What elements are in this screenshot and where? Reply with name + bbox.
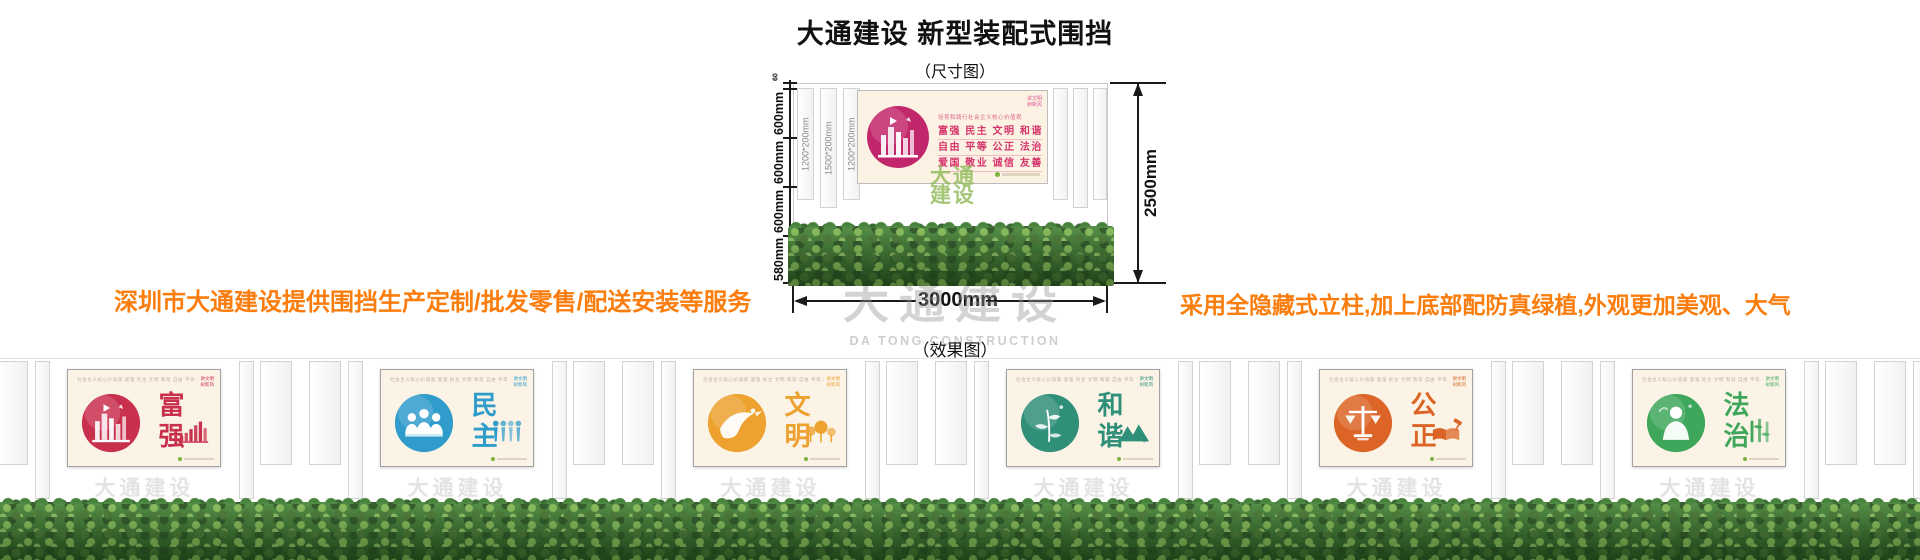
book-and-gavel-icon	[1431, 418, 1463, 444]
micro-header: 社会主义核心价值观 富强 民主 文明 和谐 自由 平等 公正 法治 爱国 敬业 …	[703, 377, 824, 383]
fence-post	[1248, 361, 1280, 465]
fence-post	[0, 361, 28, 465]
post-right-2	[1073, 88, 1088, 208]
effect-diagram-label: （效果图）	[750, 336, 1160, 361]
segment-60: 60	[768, 70, 784, 84]
green-dot-icon	[1430, 457, 1434, 461]
micro-header: 社会主义核心价值观 富强 民主 文明 和谐 自由 平等 公正 法治 爱国 敬业 …	[1016, 377, 1137, 383]
artificial-hedge	[0, 502, 1920, 560]
micro-header: 社会主义核心价值观 富强 民主 文明 和谐 自由 平等 公正 法治 爱国 敬业 …	[1329, 377, 1450, 383]
panel-footer-mark	[995, 172, 1040, 177]
values-row-2: 自由 平等 公正 法治	[938, 140, 1042, 156]
micro-header: 社会主义核心价值观 富强 民主 文明 和谐 自由 平等 公正 法治 爱国 敬业 …	[1642, 377, 1763, 383]
value-panel: 社会主义核心价值观 富强 民主 文明 和谐 自由 平等 公正 法治 爱国 敬业 …	[380, 369, 534, 467]
post-right-1	[1053, 88, 1068, 200]
height-dim-line	[1137, 84, 1139, 282]
fence-post	[935, 361, 967, 465]
values-row-1: 富强 民主 文明 和谐	[938, 124, 1042, 140]
post-right-3	[1093, 88, 1107, 200]
micro-text-bar	[497, 458, 527, 461]
micro-text-bar	[1123, 458, 1153, 461]
corner-slogan: 讲文明 树新风	[1453, 376, 1467, 387]
page-title: 大通建设 新型装配式围挡	[750, 12, 1160, 51]
fence-post	[622, 361, 654, 465]
corner-slogan: 讲文明 树新风	[1140, 376, 1154, 387]
people-marks-icon	[492, 418, 524, 444]
fence-post	[1825, 361, 1857, 465]
green-dot-icon	[1743, 457, 1747, 461]
micro-text-bar	[810, 458, 840, 461]
panel-footer-mark	[491, 457, 527, 461]
fence-post	[1199, 361, 1231, 465]
panel-footer-mark	[1117, 457, 1153, 461]
left-service-note: 深圳市大通建设提供围挡生产定制/批发零售/配送安装等服务	[114, 282, 751, 317]
panel-footer-mark	[178, 457, 214, 461]
core-values-list: 培育和践行社会主义核心价值观 富强 民主 文明 和谐 自由 平等 公正 法治 爱…	[938, 113, 1042, 172]
fence-post	[260, 361, 292, 465]
corner-slogan: 讲文明 树新风	[514, 376, 528, 387]
segment-600-2: 600mm	[771, 138, 787, 186]
fence-post	[1874, 361, 1906, 465]
green-brand-badge: 大通 建设	[930, 167, 976, 205]
micro-text-bar	[1749, 458, 1779, 461]
green-dot-icon	[178, 457, 182, 461]
micro-header: 社会主义核心价值观 富强 民主 文明 和谐 自由 平等 公正 法治 爱国 敬业 …	[390, 377, 511, 383]
figure-silhouette-motif-icon	[1646, 393, 1706, 453]
value-panel: 社会主义核心价值观 富强 民主 文明 和谐 自由 平等 公正 法治 爱国 敬业 …	[1632, 369, 1786, 467]
micro-text-bar	[1436, 458, 1466, 461]
corner-slogan: 讲文明 树新风	[827, 376, 841, 387]
fence-post	[309, 361, 341, 465]
city-skyline-motif-icon	[81, 393, 141, 453]
forest-leaves-motif-icon	[1020, 393, 1080, 453]
fence-post	[573, 361, 605, 465]
corner-slogan: 讲文明 树新风	[1766, 376, 1780, 387]
post-1500: 1500*200mm	[820, 88, 837, 208]
people-holding-hands-motif-icon	[394, 393, 454, 453]
panel-footer-mark	[1743, 457, 1779, 461]
value-panel: 社会主义核心价值观 富强 民主 文明 和谐 自由 平等 公正 法治 爱国 敬业 …	[693, 369, 847, 467]
segment-600-1: 600mm	[771, 89, 787, 137]
post-size-label: 1200*200mm	[798, 89, 813, 199]
fence-post	[1561, 361, 1593, 465]
crane-bird-motif-icon	[707, 393, 767, 453]
green-dot-icon	[1117, 457, 1121, 461]
scales-of-justice-motif-icon	[1333, 393, 1393, 453]
slogan-header: 培育和践行社会主义核心价值观	[938, 113, 1042, 121]
mountains-icon	[1118, 418, 1150, 444]
value-panel: 社会主义核心价值观 富强 民主 文明 和谐 自由 平等 公正 法治 爱国 敬业 …	[1006, 369, 1160, 467]
segment-600-3: 600mm	[771, 187, 787, 235]
green-dot-icon	[995, 172, 1000, 177]
corner-slogan: 讲文明 树新风	[201, 376, 215, 387]
green-dot-icon	[491, 457, 495, 461]
city-skyline-motif-icon	[866, 105, 930, 169]
panel-footer-mark	[1430, 457, 1466, 461]
fence-post	[1512, 361, 1544, 465]
green-dot-icon	[804, 457, 808, 461]
fence-post	[1913, 361, 1920, 499]
corner-slogan: 讲文明 树新风	[1027, 96, 1042, 108]
micro-text-bar	[184, 458, 214, 461]
fence-post	[886, 361, 918, 465]
poster: 大通建设 新型装配式围挡 （尺寸图） 深圳市大通建设提供围挡生产定制/批发零售/…	[0, 0, 1920, 560]
micro-header: 社会主义核心价值观 富强 民主 文明 和谐 自由 平等 公正 法治 爱国 敬业 …	[77, 377, 198, 383]
right-feature-note: 采用全隐藏式立柱,加上底部配防真绿植,外观更加美观、大气	[1180, 286, 1791, 320]
bamboo-icon	[1744, 418, 1776, 444]
diagram-hedge	[788, 226, 1114, 286]
micro-text-bar	[1002, 173, 1040, 176]
total-height-label: 2500mm	[1141, 83, 1161, 283]
dim-tick	[783, 82, 797, 84]
post-size-label: 1500*200mm	[821, 89, 836, 207]
panel-footer-mark	[804, 457, 840, 461]
bar-chart-icon	[179, 418, 211, 444]
trees-icon	[805, 418, 837, 444]
post-1200: 1200*200mm	[797, 88, 814, 200]
value-panel: 社会主义核心价值观 富强 民主 文明 和谐 自由 平等 公正 法治 爱国 敬业 …	[67, 369, 221, 467]
value-panel: 社会主义核心价值观 富强 民主 文明 和谐 自由 平等 公正 法治 爱国 敬业 …	[1319, 369, 1473, 467]
